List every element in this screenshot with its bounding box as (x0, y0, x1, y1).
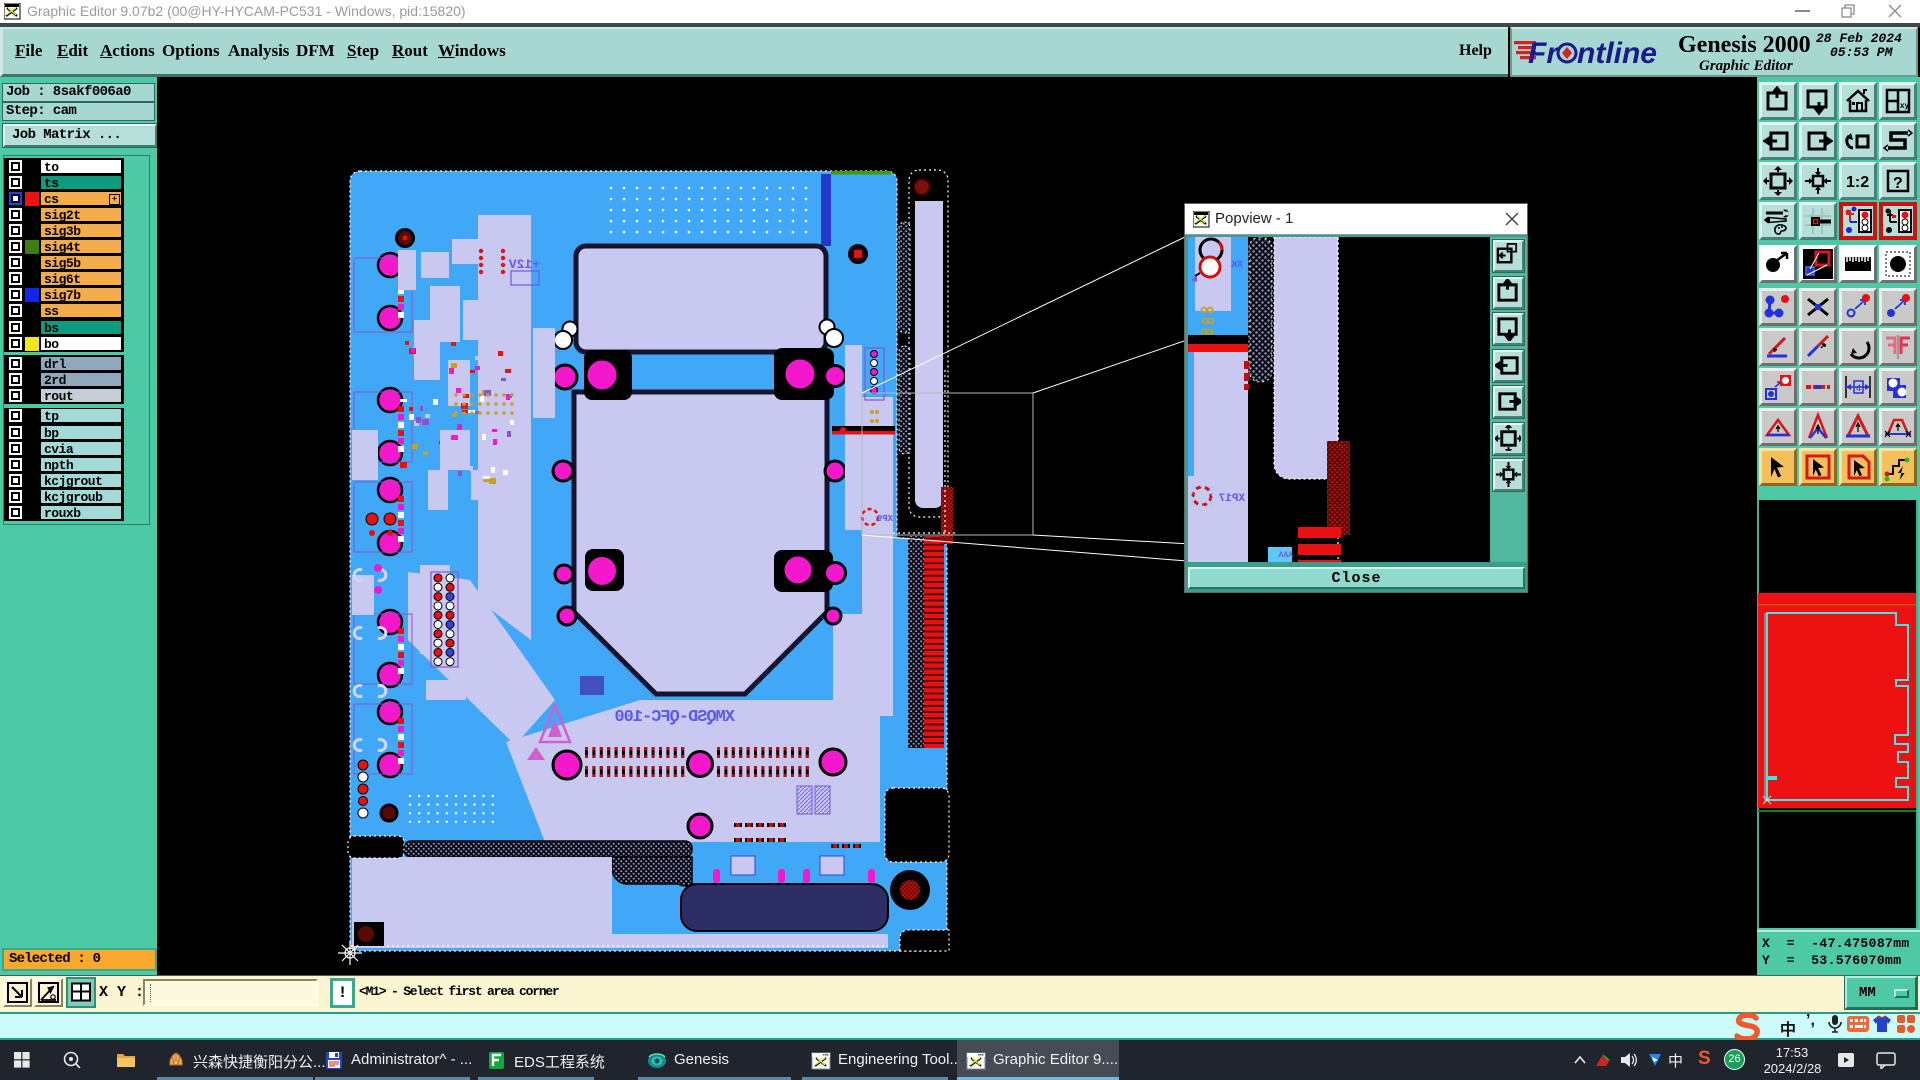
svg-text:XP9: XP9 (877, 514, 893, 524)
svg-text:XMQSD-QFC-100: XMQSD-QFC-100 (615, 708, 735, 727)
svg-text:XK: XK (1231, 260, 1243, 271)
svg-text:Fr: Fr (1528, 37, 1560, 70)
svg-text:xy: xy (1900, 101, 1909, 110)
svg-text:+12V: +12V (509, 257, 540, 272)
svg-text:?: ? (1893, 175, 1903, 192)
svg-text:4: 4 (1856, 383, 1861, 393)
svg-text:XP17: XP17 (1219, 493, 1245, 505)
svg-text:1:2: 1:2 (1846, 174, 1869, 191)
svg-text:ntline: ntline (1577, 37, 1657, 70)
svg-text:AAA: AAA (1278, 551, 1293, 560)
